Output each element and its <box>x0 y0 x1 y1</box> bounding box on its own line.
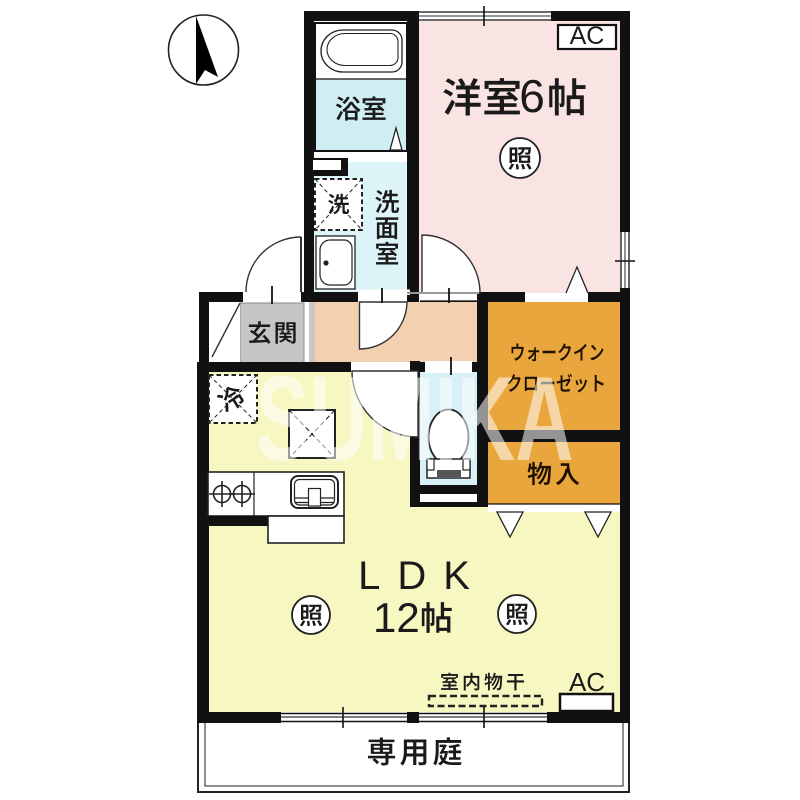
svg-text:AC: AC <box>570 22 605 50</box>
svg-text:12: 12 <box>373 594 420 641</box>
svg-text:LDK: LDK <box>358 554 487 598</box>
svg-text:SUMIKA: SUMIKA <box>255 351 573 486</box>
svg-text:6: 6 <box>519 70 545 122</box>
svg-text:AC: AC <box>569 667 605 697</box>
